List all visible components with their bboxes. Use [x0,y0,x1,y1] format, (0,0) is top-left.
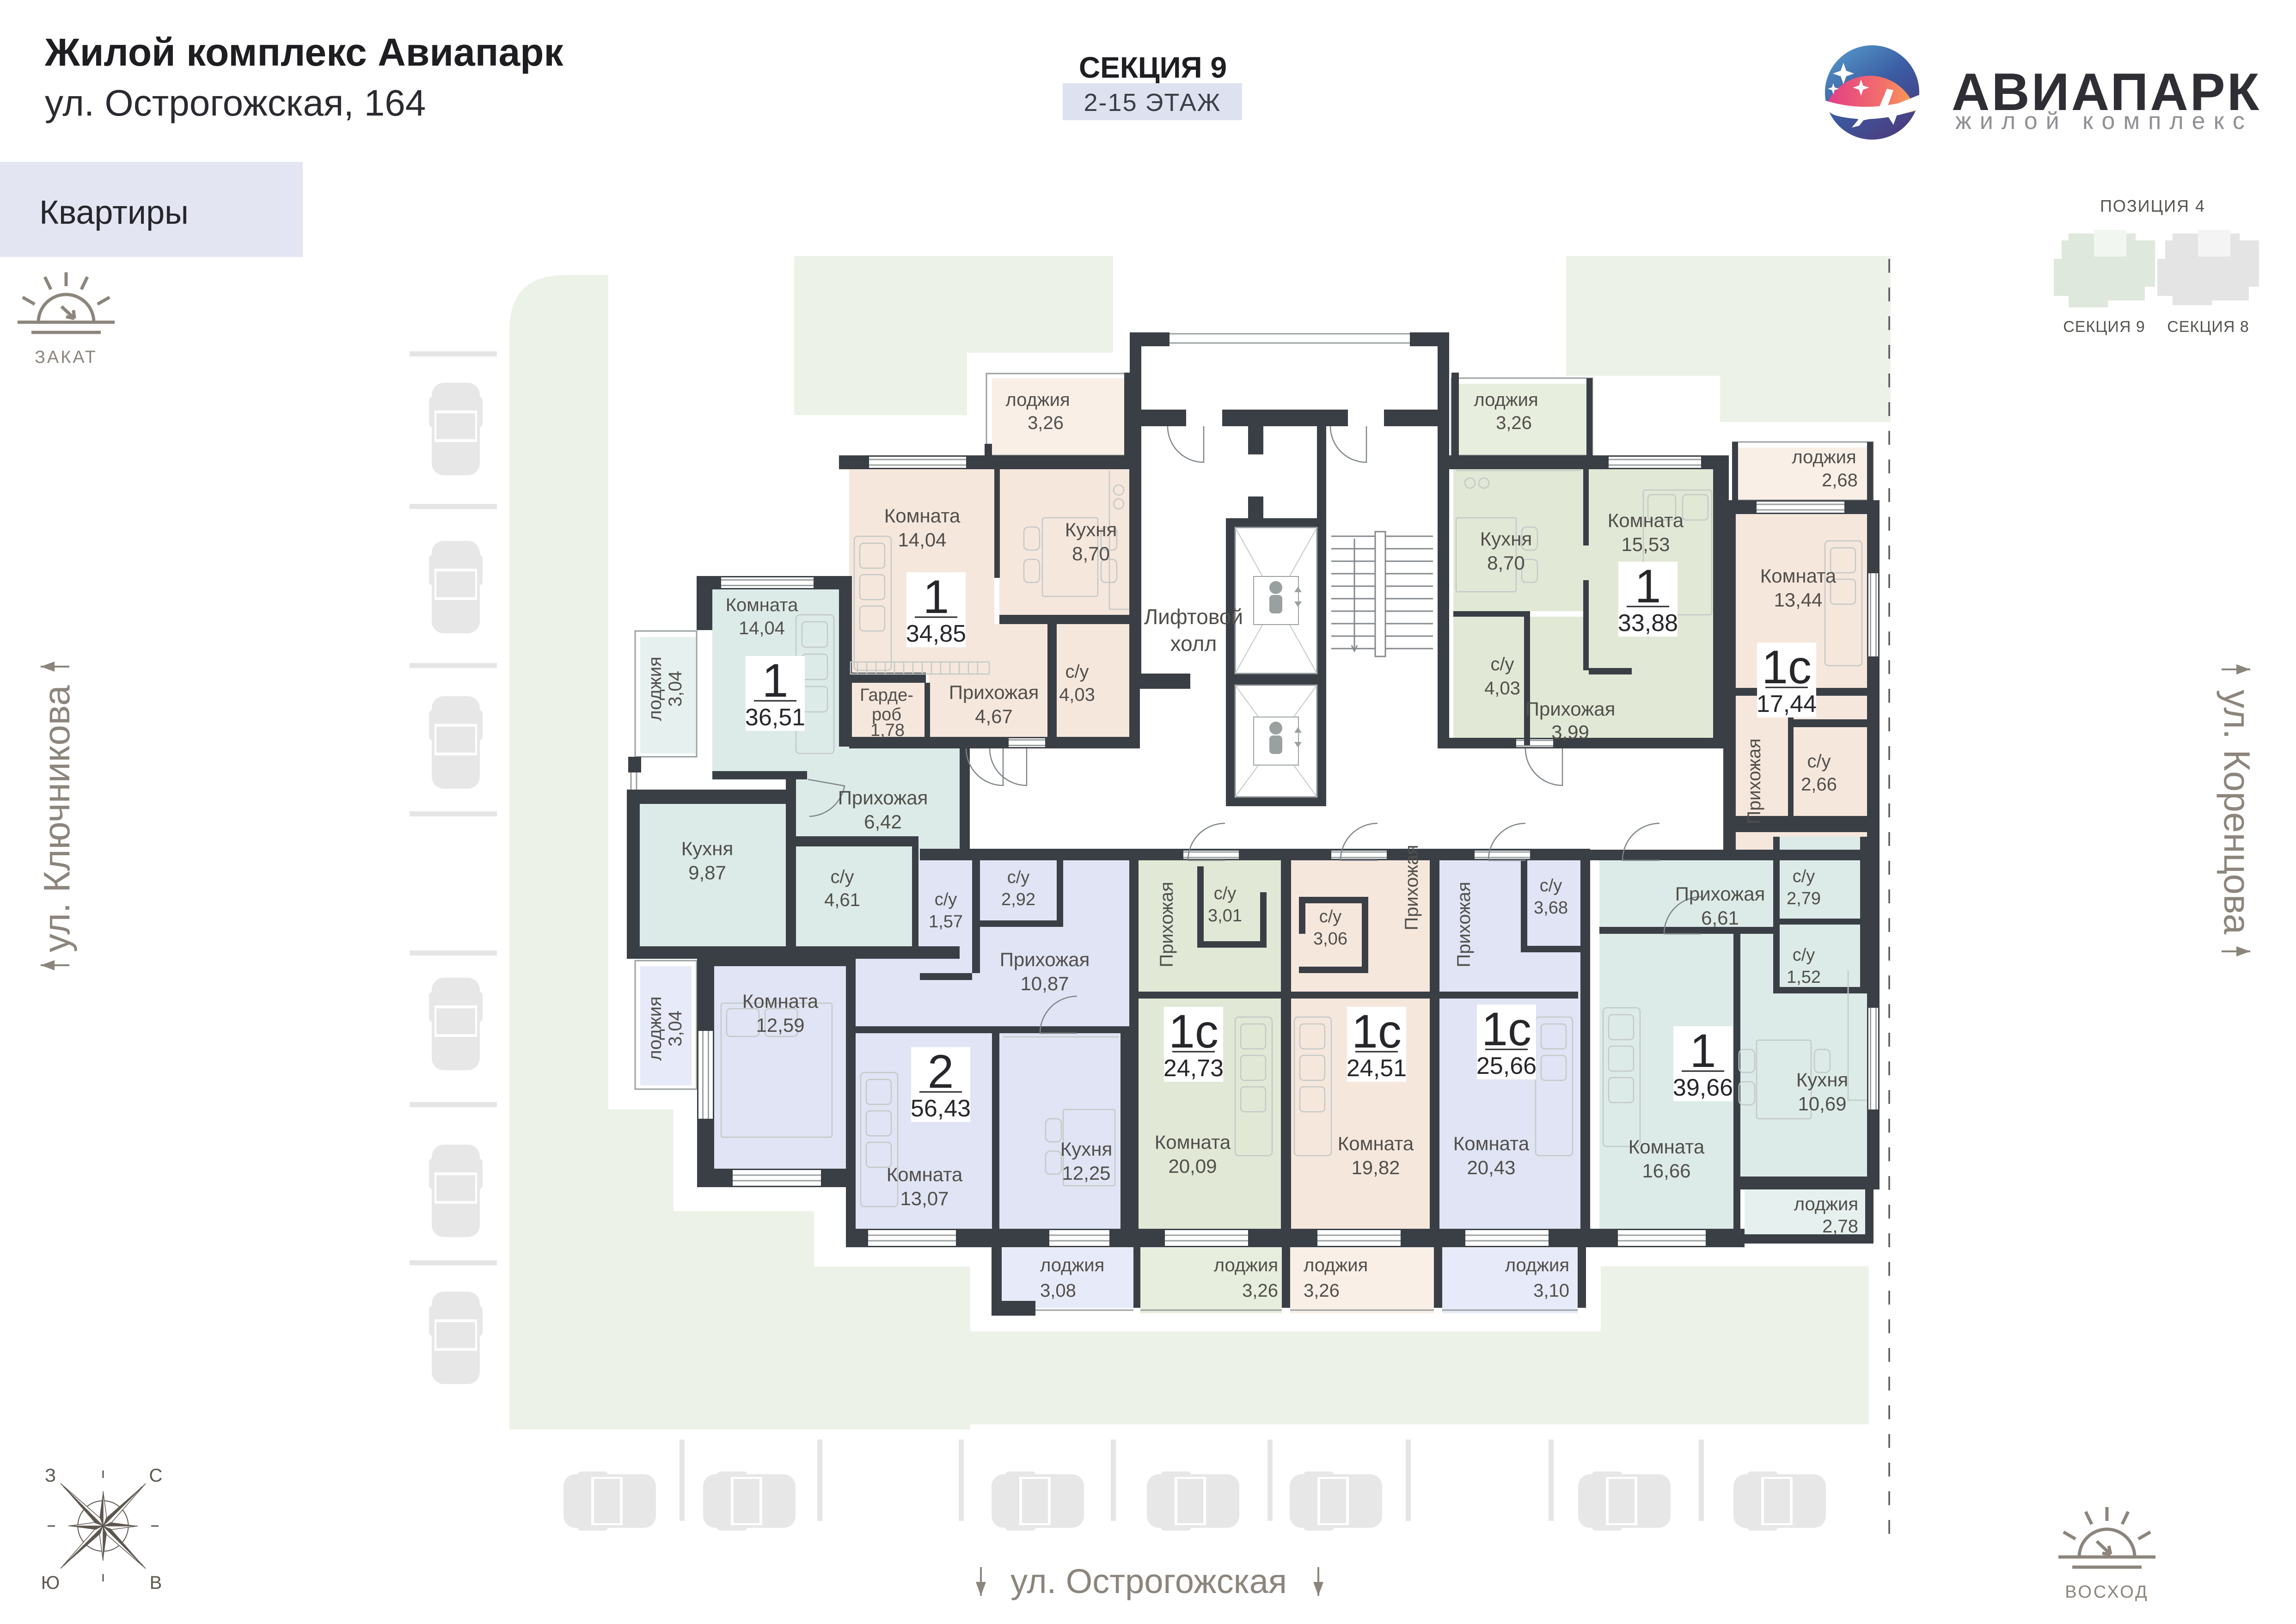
svg-text:лоджия: лоджия [645,996,665,1060]
svg-text:8,70: 8,70 [1072,543,1110,564]
svg-text:с/у: с/у [1807,751,1831,772]
svg-text:1: 1 [762,654,789,707]
svg-text:1,78: 1,78 [870,721,905,740]
svg-text:36,51: 36,51 [745,704,805,731]
svg-text:1: 1 [923,570,949,623]
svg-text:10,69: 10,69 [1798,1093,1846,1115]
svg-text:ул. Коренцова: ул. Коренцова [2216,690,2258,935]
svg-text:Прихожая: Прихожая [1157,882,1177,967]
svg-text:1с: 1с [1482,1003,1531,1055]
svg-text:3,04: 3,04 [665,671,686,707]
svg-text:2,92: 2,92 [1001,890,1035,909]
svg-text:Комната: Комната [726,595,798,615]
svg-text:лоджия: лоджия [645,656,665,721]
svg-text:17,44: 17,44 [1757,691,1817,717]
svg-text:19,82: 19,82 [1351,1157,1400,1178]
svg-text:Прихожая: Прихожая [949,681,1039,703]
svg-text:3,68: 3,68 [1534,898,1568,918]
svg-text:с/у: с/у [1793,867,1815,886]
svg-text:Прихожая: Прихожая [1000,949,1090,970]
svg-text:3,26: 3,26 [1496,413,1532,433]
svg-text:с/у: с/у [1065,662,1089,682]
svg-text:2,78: 2,78 [1822,1216,1858,1237]
svg-text:6,61: 6,61 [1701,907,1739,929]
svg-text:12,25: 12,25 [1062,1162,1110,1184]
svg-text:3,06: 3,06 [1313,929,1347,949]
svg-text:3,99: 3,99 [1551,721,1589,743]
svg-text:1: 1 [1635,560,1661,613]
svg-text:3,08: 3,08 [1040,1281,1076,1301]
svg-text:с/у: с/у [1490,654,1514,674]
svg-text:с/у: с/у [830,867,854,887]
svg-text:1,52: 1,52 [1787,968,1821,987]
svg-text:Кухня: Кухня [681,838,733,859]
svg-text:3,10: 3,10 [1533,1281,1569,1301]
svg-text:24,51: 24,51 [1347,1055,1407,1082]
svg-text:Комната: Комната [884,505,961,527]
svg-text:лоджия: лоджия [1505,1255,1569,1275]
svg-text:34,85: 34,85 [906,620,966,647]
svg-text:2,79: 2,79 [1787,889,1821,908]
svg-text:Комната: Комната [1760,565,1837,587]
svg-text:56,43: 56,43 [911,1095,971,1122]
svg-text:СЕКЦИЯ 8: СЕКЦИЯ 8 [2167,318,2249,336]
svg-text:СЕКЦИЯ 9: СЕКЦИЯ 9 [1079,51,1227,84]
svg-text:Ю: Ю [41,1573,60,1593]
svg-text:ВОСХОД: ВОСХОД [2065,1582,2149,1602]
svg-text:С: С [149,1465,163,1486]
svg-text:с/у: с/у [1793,945,1815,965]
svg-text:Комната: Комната [1629,1136,1705,1158]
svg-text:лоджия: лоджия [1040,1255,1104,1275]
svg-text:Кухня: Кухня [1796,1069,1848,1091]
svg-text:3,26: 3,26 [1242,1281,1278,1301]
svg-text:8,70: 8,70 [1487,552,1525,574]
svg-text:жилой комплекс: жилой комплекс [1955,108,2253,135]
svg-text:лоджия: лоджия [1214,1255,1278,1275]
svg-text:З: З [45,1465,56,1486]
svg-text:3,01: 3,01 [1208,906,1242,925]
svg-text:Комната: Комната [1155,1131,1231,1153]
svg-text:2,68: 2,68 [1822,470,1858,490]
svg-text:3,26: 3,26 [1028,413,1064,433]
svg-text:4,67: 4,67 [975,705,1013,727]
svg-text:лоджия: лоджия [1474,390,1538,410]
svg-text:Квартиры: Квартиры [39,194,189,231]
svg-text:лоджия: лоджия [1005,390,1070,410]
svg-text:13,07: 13,07 [900,1188,949,1209]
svg-text:холл: холл [1170,631,1217,656]
svg-text:с/у: с/у [1007,868,1030,887]
svg-text:14,04: 14,04 [898,529,946,551]
svg-text:Комната: Комната [1338,1133,1414,1154]
svg-text:Комната: Комната [742,990,819,1012]
svg-text:Прихожая: Прихожая [1454,882,1474,967]
svg-text:1с: 1с [1169,1005,1218,1058]
svg-text:4,61: 4,61 [824,890,860,910]
svg-text:1с: 1с [1762,641,1812,693]
svg-text:2: 2 [928,1045,954,1098]
svg-text:с/у: с/у [1319,907,1342,926]
svg-text:15,53: 15,53 [1621,533,1670,555]
svg-text:14,04: 14,04 [739,618,785,638]
svg-text:1с: 1с [1352,1005,1402,1058]
svg-text:Прихожая: Прихожая [1744,738,1764,824]
svg-text:Лифтовой: Лифтовой [1144,605,1243,629]
svg-text:13,44: 13,44 [1774,589,1822,611]
svg-text:2-15 ЭТАЖ: 2-15 ЭТАЖ [1084,89,1221,116]
svg-text:Жилой комплекс Авиапарк: Жилой комплекс Авиапарк [44,31,563,74]
svg-text:ул. Острогожская, 164: ул. Острогожская, 164 [45,82,426,123]
svg-text:лоджия: лоджия [1792,447,1856,467]
svg-text:Комната: Комната [1608,509,1684,531]
svg-text:6,42: 6,42 [864,811,902,833]
svg-text:Прихожая: Прихожая [1675,883,1765,905]
svg-text:2,66: 2,66 [1801,774,1837,795]
svg-text:25,66: 25,66 [1476,1053,1537,1079]
svg-text:с/у: с/у [935,890,957,909]
svg-text:ул. Ключникова: ул. Ключникова [36,685,77,952]
svg-text:ПОЗИЦИЯ 4: ПОЗИЦИЯ 4 [2100,196,2205,215]
svg-text:3,04: 3,04 [665,1011,686,1047]
svg-text:СЕКЦИЯ 9: СЕКЦИЯ 9 [2063,318,2145,336]
svg-text:В: В [150,1573,162,1593]
svg-text:Прихожая: Прихожая [838,787,928,809]
svg-text:33,88: 33,88 [1618,610,1678,637]
svg-text:ЗАКАТ: ЗАКАТ [35,348,98,367]
svg-text:10,87: 10,87 [1020,973,1069,994]
svg-text:Гарде-: Гарде- [860,686,913,705]
svg-text:1,57: 1,57 [929,912,963,932]
svg-text:Прихожая: Прихожая [1402,845,1422,930]
svg-text:с/у: с/у [1540,876,1562,895]
svg-text:1: 1 [1690,1024,1716,1077]
svg-text:16,66: 16,66 [1642,1160,1690,1182]
svg-text:Прихожая: Прихожая [1525,698,1616,720]
svg-text:Комната: Комната [1453,1133,1530,1154]
svg-text:Кухня: Кухня [1065,519,1117,540]
svg-text:4,03: 4,03 [1059,685,1095,705]
svg-text:20,09: 20,09 [1168,1155,1217,1177]
svg-text:9,87: 9,87 [688,862,726,883]
svg-text:с/у: с/у [1214,884,1237,903]
svg-text:Комната: Комната [887,1164,963,1185]
svg-text:39,66: 39,66 [1673,1074,1733,1101]
svg-text:4,03: 4,03 [1484,678,1520,699]
svg-text:20,43: 20,43 [1467,1157,1515,1178]
svg-text:Кухня: Кухня [1480,528,1532,550]
svg-text:24,73: 24,73 [1163,1055,1224,1082]
svg-text:ул. Острогожская: ул. Острогожская [1010,1562,1287,1600]
svg-text:Кухня: Кухня [1060,1138,1112,1160]
svg-text:3,26: 3,26 [1304,1281,1340,1301]
svg-text:12,59: 12,59 [756,1014,804,1036]
svg-text:лоджия: лоджия [1304,1255,1368,1275]
svg-text:лоджия: лоджия [1794,1194,1858,1214]
